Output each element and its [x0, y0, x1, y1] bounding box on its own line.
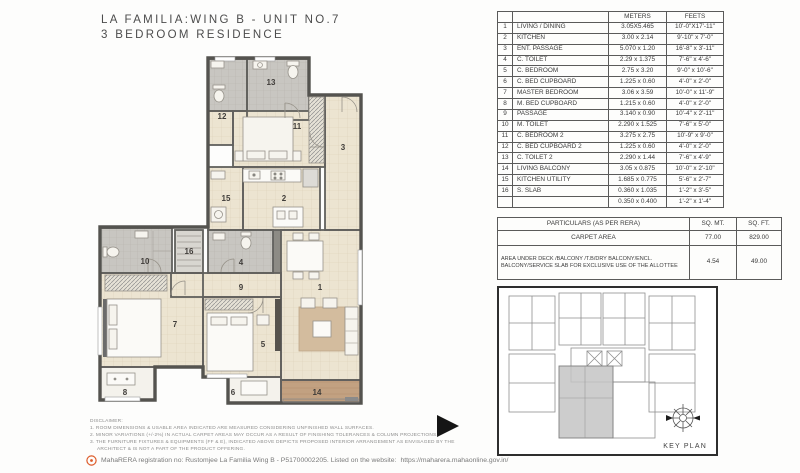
dresser-8: [107, 373, 135, 385]
room-label-10: 10: [141, 257, 150, 266]
master-bed: [103, 299, 161, 357]
table-row: 10M. TOILET2.290 x 1.5257'-6" x 5'-0": [498, 120, 724, 131]
table-header-row: METERS FEETS: [498, 12, 724, 23]
brochure-page: LA FAMILIA:WING B - UNIT NO.7 3 BEDROOM …: [0, 0, 800, 473]
particulars-header-label: PARTICULARS (AS PER RERA): [498, 218, 690, 231]
disclaimer-line: 2. MINOR VARIATIONS (+/-2%) IN ACTUAL CA…: [90, 433, 500, 440]
room-label-5: 5: [261, 340, 266, 349]
cupboard-6-unit: [241, 381, 267, 395]
ent-passage-3-floor: [325, 95, 361, 230]
table-row: 14LIVING BALCONY3.05 x 0.87510'-0" x 2'-…: [498, 164, 724, 175]
footer-text: MahaRERA registration no: Rustomjee La F…: [101, 457, 396, 464]
header-meters: METERS: [609, 12, 667, 23]
room-label-4: 4: [239, 258, 244, 267]
table-row: 13C. TOILET 22.290 x 1.447'-6" x 4'-9": [498, 153, 724, 164]
header-feets: FEETS: [667, 12, 724, 23]
title-line-1: LA FAMILIA:WING B - UNIT NO.7: [101, 13, 341, 28]
particulars-header-sqmt: SQ. MT.: [690, 218, 737, 231]
room-label-6: 6: [231, 388, 236, 397]
bedroom-11-bed: [235, 117, 301, 161]
disclaimer-heading: DISCLAIMER:: [90, 419, 500, 426]
room-label-13: 13: [267, 78, 276, 87]
room-label-9: 9: [239, 283, 244, 292]
table-row: 8M. BED CUPBOARD1.215 x 0.604'-0" x 2'-0…: [498, 99, 724, 110]
highlighted-unit: [559, 366, 613, 438]
table-row: 2KITCHEN3.00 x 2.149'-10" x 7'-0": [498, 33, 724, 44]
particulars-row: CARPET AREA 77.00 829.00: [498, 231, 782, 246]
dimensions-table: METERS FEETS 1LIVING / DINING3.05X5.4651…: [497, 11, 724, 208]
room-label-1: 1: [318, 283, 323, 292]
disclaimer-line: 3. THE FURNITURE FIXTURES & EQUIPMENTS (…: [90, 440, 500, 447]
room-label-8: 8: [123, 388, 128, 397]
room-label-12: 12: [218, 112, 227, 121]
table-row: 1LIVING / DINING3.05X5.46510'-0"X17'-11": [498, 22, 724, 33]
wardrobe-11: [309, 97, 324, 163]
table-row: 12C. BED CUPBOARD 21.225 x 0.604'-0" x 2…: [498, 142, 724, 153]
disclaimer: DISCLAIMER: 1. ROOM DIMENSIONS & USABLE …: [90, 419, 500, 454]
particulars-row: AREA UNDER DECK /BALCONY /T.B/DRY BALCON…: [498, 246, 782, 280]
key-plan: KEY PLAN: [497, 286, 718, 456]
footer-url[interactable]: https://maharera.mahaonline.gov.in/: [400, 457, 508, 464]
table-row: 3ENT. PASSAGE5.070 x 1.2016'-8" x 3'-11": [498, 44, 724, 55]
room-label-16: 16: [185, 247, 194, 256]
room-label-3: 3: [341, 143, 346, 152]
table-row: 9PASSAGE3.140 x 0.9010'-4" x 2'-11": [498, 109, 724, 120]
key-plan-drawing: KEY PLAN: [499, 288, 716, 454]
table-row: 7MASTER BEDROOM3.06 x 3.5910'-0" x 11'-9…: [498, 88, 724, 99]
table-row: 6C. BED CUPBOARD1.225 x 0.604'-0" x 2'-0…: [498, 77, 724, 88]
table-row: 0.350 x 0.4001'-2" x 1'-4": [498, 196, 724, 207]
table-row: 16S. SLAB0.360 x 1.0351'-2" x 3'-5": [498, 186, 724, 197]
particulars-header-sqft: SQ. FT.: [737, 218, 782, 231]
room-label-15: 15: [222, 194, 231, 203]
disclaimer-line: 1. ROOM DIMENSIONS & USABLE AREA INDICAT…: [90, 426, 500, 433]
particulars-header-row: PARTICULARS (AS PER RERA) SQ. MT. SQ. FT…: [498, 218, 782, 231]
footer: MahaRERA registration no: Rustomjee La F…: [86, 455, 508, 466]
plan-stamp: [345, 397, 358, 401]
tv-unit: [275, 299, 281, 351]
floor-plan: 1 2 3 4 5 6 7 8 9 10 11 12 13 14 15 16: [95, 55, 395, 415]
room-label-7: 7: [173, 320, 178, 329]
room-label-14: 14: [313, 388, 322, 397]
room-label-11: 11: [293, 122, 302, 131]
table-row: 4C. TOILET2.29 x 1.3757'-6" x 4'-6": [498, 55, 724, 66]
table-row: 5C. BEDROOM2.75 x 3.209'-0" x 10'-6": [498, 66, 724, 77]
wardrobe-5: [205, 299, 253, 310]
maharera-logo-icon: [86, 455, 97, 466]
page-title: LA FAMILIA:WING B - UNIT NO.7 3 BEDROOM …: [101, 13, 341, 43]
table-row: 15KITCHEN UTILITY1.685 x 0.7755'-6" x 2'…: [498, 175, 724, 186]
disclaimer-line: ARCHITECT & IS NOT A PART OF THE PRODUCT…: [90, 447, 500, 454]
key-plan-label: KEY PLAN: [663, 443, 707, 450]
particulars-table: PARTICULARS (AS PER RERA) SQ. MT. SQ. FT…: [497, 217, 782, 280]
room-label-2: 2: [282, 194, 287, 203]
table-row: 11C. BEDROOM 23.275 x 2.7510'-9" x 9'-0": [498, 131, 724, 142]
title-line-2: 3 BEDROOM RESIDENCE: [101, 28, 341, 43]
wardrobe-7: [105, 275, 167, 291]
